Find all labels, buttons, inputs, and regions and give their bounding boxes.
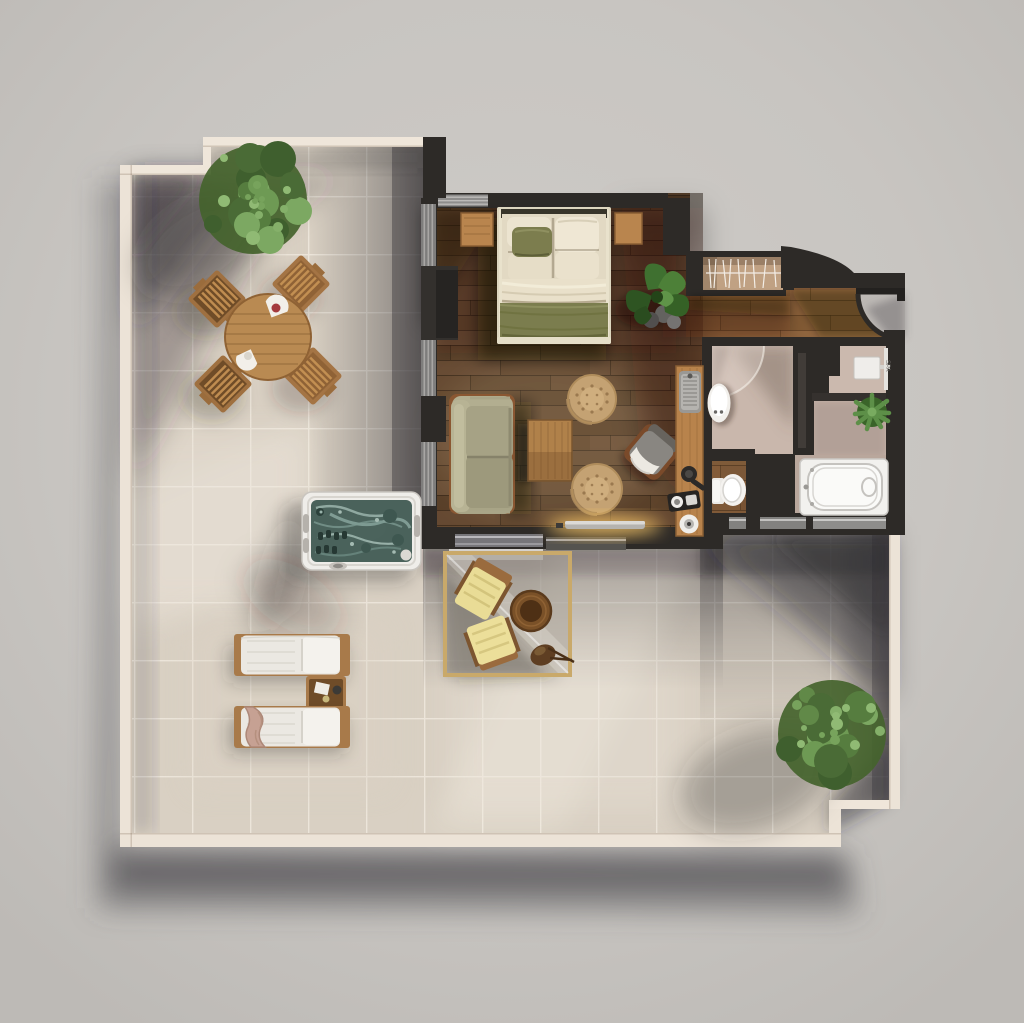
svg-text:SPA: SPA <box>884 360 890 372</box>
